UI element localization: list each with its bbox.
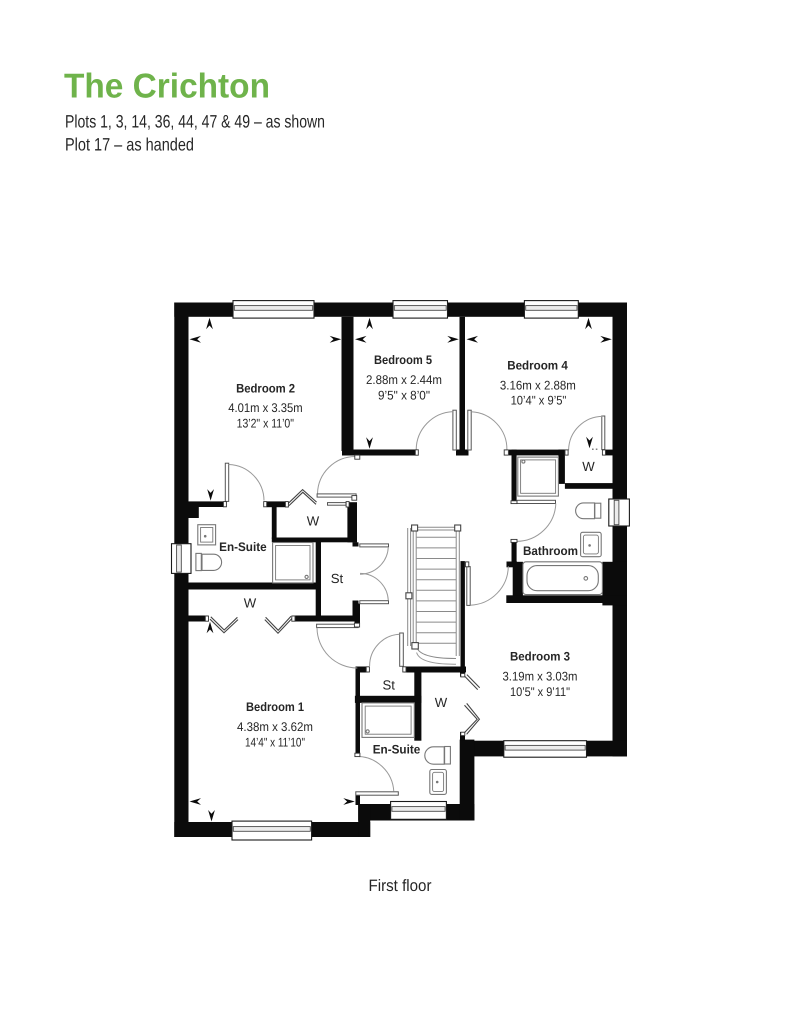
svg-text:10’5" x 9’11": 10’5" x 9’11" bbox=[510, 685, 570, 699]
svg-text:Bedroom 2: Bedroom 2 bbox=[236, 381, 295, 395]
svg-text:St: St bbox=[331, 571, 344, 586]
svg-text:St: St bbox=[382, 678, 395, 693]
svg-text:First floor: First floor bbox=[369, 877, 432, 895]
svg-text:W: W bbox=[307, 514, 320, 529]
svg-text:W: W bbox=[435, 695, 448, 710]
svg-text:4.38m x 3.62m: 4.38m x 3.62m bbox=[237, 720, 313, 734]
svg-text:Bedroom 5: Bedroom 5 bbox=[374, 353, 432, 367]
svg-text:9’5" x 8’0": 9’5" x 8’0" bbox=[378, 388, 430, 402]
svg-text:Bedroom 1: Bedroom 1 bbox=[246, 700, 304, 714]
svg-text:Plots 1, 3, 14, 36, 44, 47 & 4: Plots 1, 3, 14, 36, 44, 47 & 49 – as sho… bbox=[65, 112, 325, 132]
svg-text:Bedroom 3: Bedroom 3 bbox=[510, 650, 570, 664]
svg-text:13’2" x 11’0": 13’2" x 11’0" bbox=[237, 417, 294, 431]
svg-text:4.01m x 3.35m: 4.01m x 3.35m bbox=[228, 401, 302, 415]
svg-text:En-Suite: En-Suite bbox=[373, 743, 421, 757]
svg-text:En-Suite: En-Suite bbox=[219, 540, 267, 554]
svg-text:3.19m x 3.03m: 3.19m x 3.03m bbox=[503, 669, 578, 683]
svg-text:Plot 17 – as handed: Plot 17 – as handed bbox=[65, 135, 194, 155]
svg-text:W: W bbox=[582, 459, 595, 474]
svg-text:The Crichton: The Crichton bbox=[64, 68, 270, 106]
svg-text:Bathroom: Bathroom bbox=[523, 544, 578, 558]
svg-text:10’4" x 9’5": 10’4" x 9’5" bbox=[511, 394, 567, 408]
svg-text:14’4" x 11’10": 14’4" x 11’10" bbox=[245, 735, 305, 749]
svg-text:3.16m x 2.88m: 3.16m x 2.88m bbox=[500, 378, 576, 392]
svg-text:Bedroom 4: Bedroom 4 bbox=[507, 359, 568, 373]
svg-text:W: W bbox=[244, 596, 257, 611]
svg-text:2.88m x 2.44m: 2.88m x 2.44m bbox=[366, 373, 442, 387]
